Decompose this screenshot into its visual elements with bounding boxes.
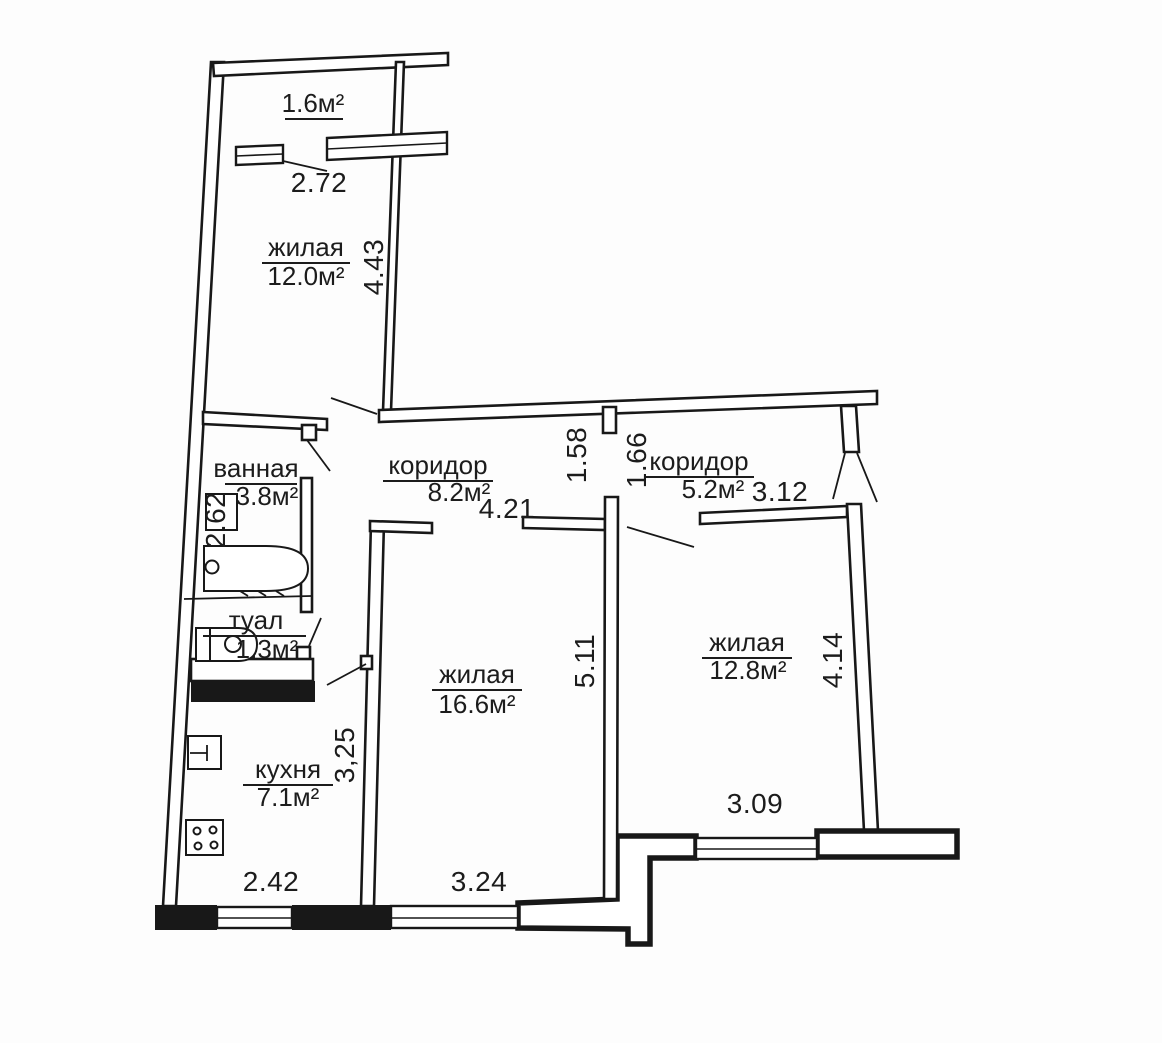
stove-burner-4 (211, 842, 218, 849)
living2-area: 16.6м² (438, 689, 515, 719)
kitchen-label: кухня (255, 754, 321, 784)
living3-bottom-wall-stub (817, 831, 957, 857)
dim-hall1-width: 1.58 (561, 427, 592, 484)
dim-living2-width: 3.24 (451, 866, 508, 897)
wc-area: 1.3м² (236, 634, 299, 664)
labels: 1.6м² 2.72 жилая 12.0м² 4.43 ванная 3.8м… (200, 88, 848, 897)
dim-hall2-entry: 1.66 (621, 432, 652, 489)
wc-door-leaf (309, 618, 321, 646)
hall1-bottom-wall (523, 517, 605, 530)
living3-label: жилая (709, 627, 785, 657)
floor-plan-page: 1.6м² 2.72 жилая 12.0м² 4.43 ванная 3.8м… (0, 0, 1162, 1043)
entrance-door-swing-right (857, 453, 877, 502)
dim-living3-depth: 4.14 (817, 632, 848, 689)
hall2-area: 5.2м² (682, 474, 745, 504)
partition-tick-3 (276, 591, 284, 596)
dim-living1-depth: 4.43 (358, 239, 389, 296)
bath-right-wall (301, 478, 312, 612)
stove-burner-2 (210, 827, 217, 834)
dim-balcony-width: 2.72 (291, 167, 348, 198)
living2-topleft-stub (370, 521, 432, 533)
bath-door-jamb (302, 425, 316, 440)
bath-label: ванная (213, 453, 298, 483)
living2-window (391, 906, 518, 928)
living3-area: 12.8м² (709, 655, 786, 685)
dim-hall1-length: 4.21 (479, 493, 536, 524)
dim-bath-depth: 2.62 (200, 492, 231, 549)
living2-right-wall (604, 497, 618, 899)
hall2-label: коридор (649, 446, 748, 476)
kitchen-stove (186, 820, 223, 855)
living3-right-wall (847, 504, 878, 831)
entrance-door-jamb (841, 406, 859, 452)
stove-burner-3 (195, 843, 202, 850)
floor-plan-drawing: 1.6м² 2.72 жилая 12.0м² 4.43 ванная 3.8м… (0, 0, 1162, 1043)
living1-right-wall (383, 62, 404, 411)
living2-label: жилая (439, 659, 515, 689)
toilet-tank (196, 628, 210, 661)
wc-label: туал (229, 605, 284, 635)
living1-label: жилая (268, 232, 344, 262)
hall1-label: коридор (388, 450, 487, 480)
bath-door-leaf (307, 440, 330, 471)
dim-kitchen-width: 2.42 (243, 866, 300, 897)
kitchen-area: 7.1м² (257, 782, 320, 812)
dim-hall2-length: 3.12 (752, 476, 809, 507)
left-outer-wall (163, 62, 224, 906)
kitchen-top-wall (191, 681, 315, 702)
bottom-wall-segment-left (155, 905, 217, 930)
living2-left-wall (361, 522, 384, 906)
living1-door-leaf (331, 398, 377, 414)
balcony-area: 1.6м² (282, 88, 345, 118)
bath-area: 3.8м² (236, 481, 299, 511)
hall-divider-stub (603, 407, 616, 433)
living1-area: 12.0м² (267, 261, 344, 291)
top-outer-wall (213, 53, 448, 76)
entrance-door-swing-left (833, 453, 845, 499)
main-wall-right (379, 391, 877, 422)
bathtub-drain (206, 561, 219, 574)
living3-door-leaf (627, 527, 694, 547)
dim-living3-width: 3.09 (727, 788, 784, 819)
hall2-bottom-wall (700, 506, 847, 524)
bathtub (204, 546, 308, 591)
bottom-wall-pier (292, 905, 391, 930)
kitchen-door-jamb (361, 656, 372, 669)
stove-burner-1 (194, 828, 201, 835)
kitchen-door-leaf (327, 664, 366, 685)
dim-kitchen-depth: 3,25 (329, 727, 360, 784)
dim-living2-depth: 5.11 (569, 634, 600, 688)
